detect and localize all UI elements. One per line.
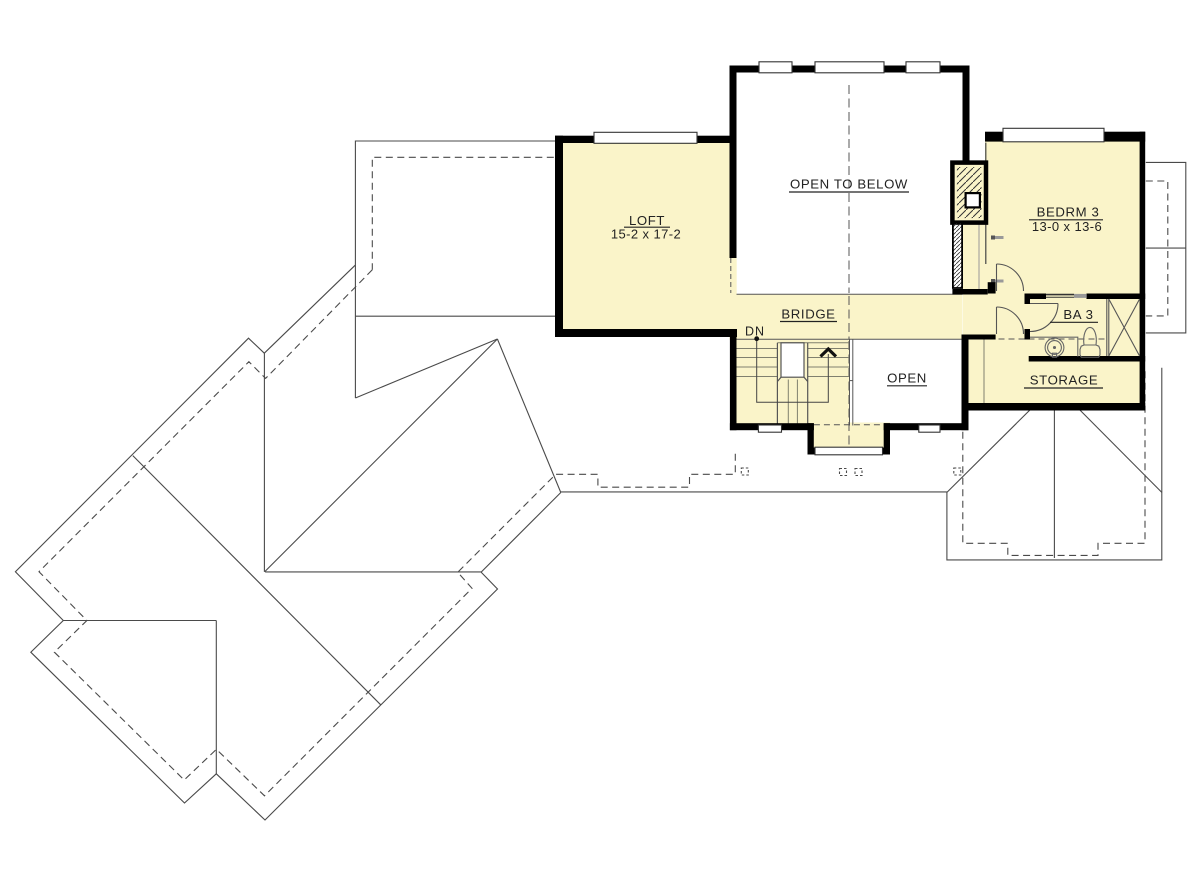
svg-text:BRIDGE: BRIDGE <box>781 307 835 322</box>
svg-text:15-2 x 17-2: 15-2 x 17-2 <box>611 227 681 242</box>
svg-text:BEDRM 3: BEDRM 3 <box>1037 205 1100 220</box>
svg-text:OPEN TO BELOW: OPEN TO BELOW <box>790 177 908 192</box>
svg-text:OPEN: OPEN <box>887 371 927 386</box>
svg-text:BA 3: BA 3 <box>1063 307 1093 322</box>
svg-text:DN: DN <box>745 325 765 339</box>
svg-text:STORAGE: STORAGE <box>1030 373 1098 388</box>
svg-text:13-0 x 13-6: 13-0 x 13-6 <box>1032 219 1102 234</box>
